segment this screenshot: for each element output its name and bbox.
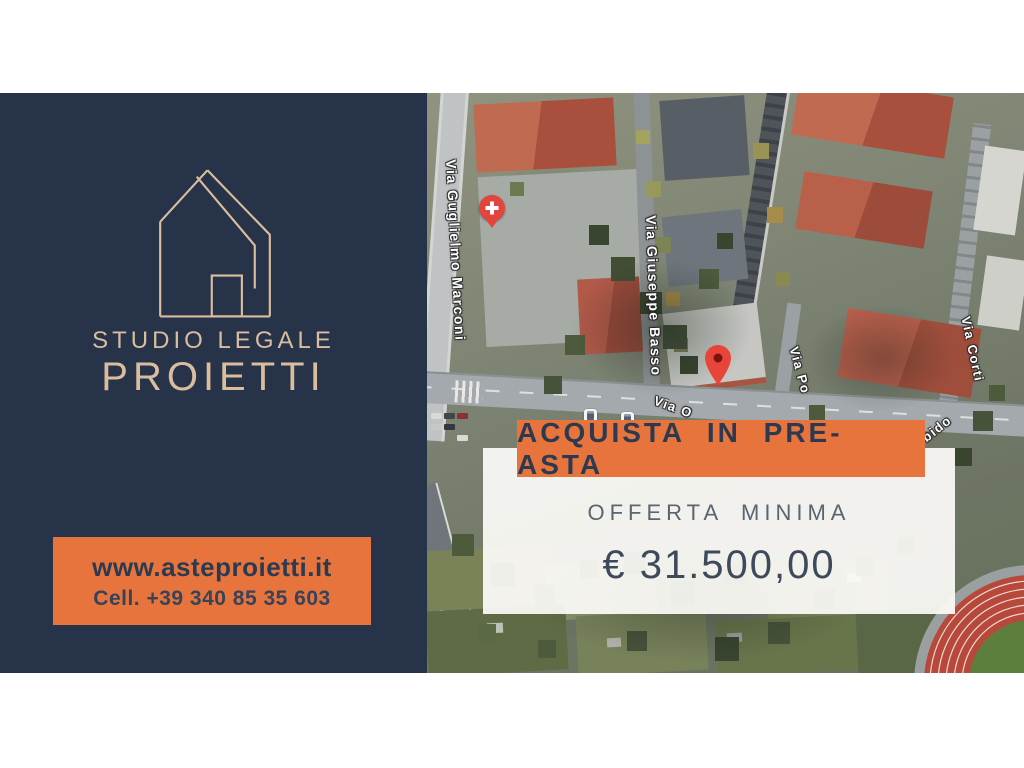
building-dark-roof: [659, 95, 749, 181]
flyer-content: STUDIO LEGALE PROIETTI www.asteproietti.…: [0, 93, 1024, 673]
hospital-pin-icon: [479, 195, 505, 221]
parked-car: [444, 424, 455, 430]
house-outline-logo-icon: [145, 153, 285, 325]
website-text: www.asteproietti.it: [92, 552, 332, 583]
parked-car: [431, 413, 442, 419]
brand-title-line2: PROIETTI: [0, 355, 427, 400]
parked-car: [431, 424, 442, 430]
offer-banner: ACQUISTA IN PRE-ASTA: [517, 420, 925, 477]
building-white-roof: [977, 255, 1024, 330]
offer-banner-text: ACQUISTA IN PRE-ASTA: [517, 417, 925, 481]
contact-box: www.asteproietti.it Cell. +39 340 85 35 …: [53, 537, 371, 625]
parked-car: [444, 413, 455, 419]
building-red-roof: [795, 171, 932, 249]
offer-amount: € 31.500,00: [483, 543, 955, 588]
tree-shadow: [777, 283, 987, 433]
brand-panel: STUDIO LEGALE PROIETTI www.asteproietti.…: [0, 93, 427, 673]
hospital-pin-icon: [486, 220, 498, 228]
building-red-roof: [473, 97, 616, 172]
parked-car: [457, 435, 468, 441]
parked-car: [457, 413, 468, 419]
flyer-canvas: STUDIO LEGALE PROIETTI www.asteproietti.…: [0, 0, 1024, 768]
offer-label: OFFERTA MINIMA: [483, 500, 955, 526]
building-red-roof: [791, 93, 954, 159]
phone-text: Cell. +39 340 85 35 603: [93, 587, 330, 611]
property-pin-icon: [705, 345, 731, 385]
brand-title-line1: STUDIO LEGALE: [0, 327, 427, 355]
crosswalk: [454, 380, 483, 403]
